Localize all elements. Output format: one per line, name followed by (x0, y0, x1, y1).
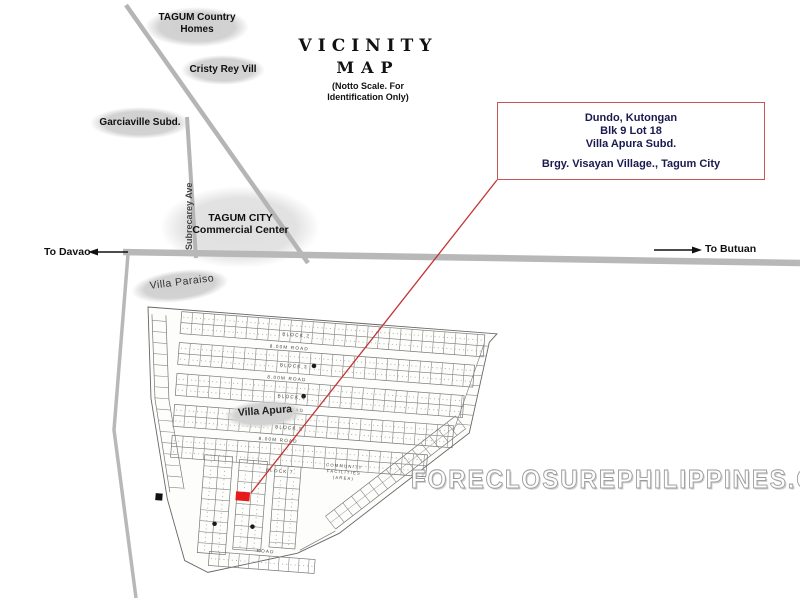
info-line4: Brgy. Visayan Village., Tagum City (498, 158, 764, 171)
map-title-line2: MAP (288, 58, 448, 77)
to-davao-label: To Davao (44, 246, 90, 258)
map-title-block: VICINITY MAP (Notto Scale. For Identific… (288, 36, 448, 103)
map-title-note2: Identification Only) (288, 92, 448, 103)
info-line1: Dundo, Kutongan (498, 112, 764, 125)
info-line3: Villa Apura Subd. (498, 138, 764, 151)
tagum-country-homes-label: TAGUM Country Homes (147, 12, 247, 35)
to-butuan-label: To Butuan (705, 243, 756, 255)
garciaville-subd-label: Garciaville Subd. (91, 117, 189, 129)
barangay-road (114, 254, 136, 598)
to-butuan-arrow (654, 247, 702, 254)
subdivision-plat: BLOCK 2 BLOCK 3 BLOCK 4 BLOCK 5 BLOCK 7 … (128, 307, 497, 593)
to-davao-arrow (88, 249, 128, 256)
subject-lot-marker (235, 491, 250, 501)
subrecarey-ave-label: Subrecarey Ave (184, 160, 194, 250)
plat-boundary (128, 307, 497, 593)
vicinity-map-page: { "title": { "line1": "VICINITY", "line2… (0, 0, 800, 600)
map-title-line1: VICINITY (288, 36, 448, 56)
property-info-box: Dundo, Kutongan Blk 9 Lot 18 Villa Apura… (497, 102, 765, 180)
map-title-note1: (Notto Scale. For (288, 81, 448, 92)
watermark: FORECLOSUREPHILIPPINES.COM (411, 464, 800, 495)
cristy-rey-vill-label: Cristy Rey Vill (183, 64, 263, 76)
info-line2: Blk 9 Lot 18 (498, 125, 764, 138)
